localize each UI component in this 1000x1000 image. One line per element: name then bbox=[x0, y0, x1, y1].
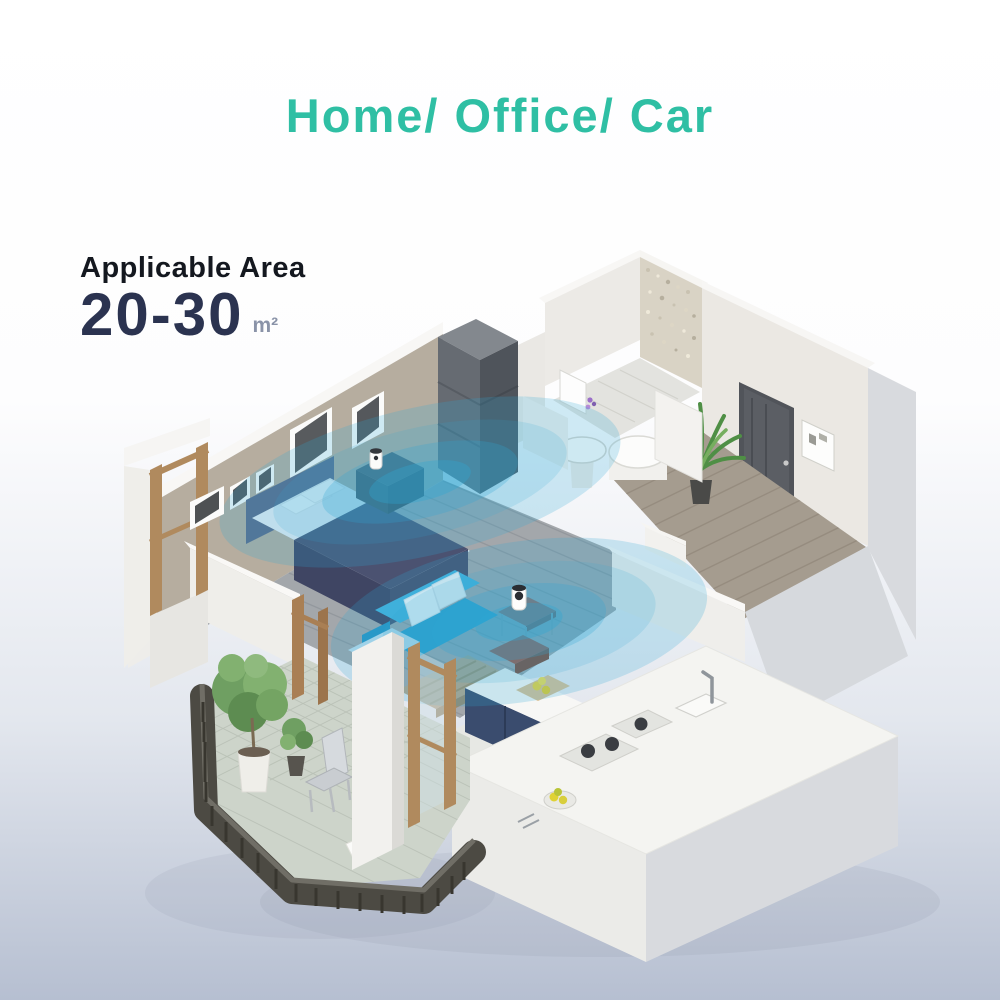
camera-device-bedroom bbox=[370, 448, 382, 469]
apartment-floorplan-illustration bbox=[0, 0, 1000, 1000]
product-banner: Home/ Office/ Car Applicable Area 20-30 … bbox=[0, 0, 1000, 1000]
wood-post bbox=[292, 594, 304, 700]
wall-pillar bbox=[352, 632, 392, 870]
balcony-door-frame bbox=[408, 642, 456, 828]
camera-device-living-room bbox=[512, 585, 526, 610]
